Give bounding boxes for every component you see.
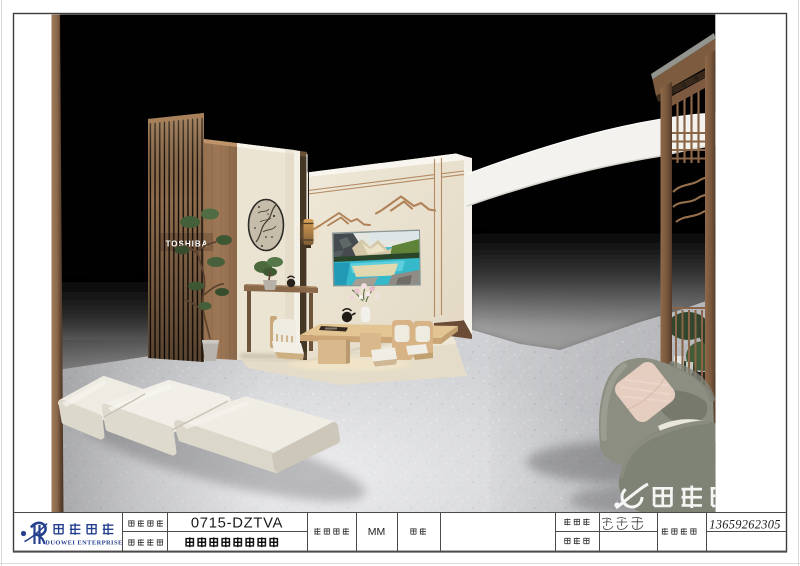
svg-text:DUOWEI ENTERPRISE: DUOWEI ENTERPRISE: [45, 540, 122, 547]
svg-text:MM: MM: [368, 526, 386, 538]
svg-text:0715-DZTVA: 0715-DZTVA: [191, 516, 283, 532]
svg-text:13659262305: 13659262305: [709, 518, 780, 532]
